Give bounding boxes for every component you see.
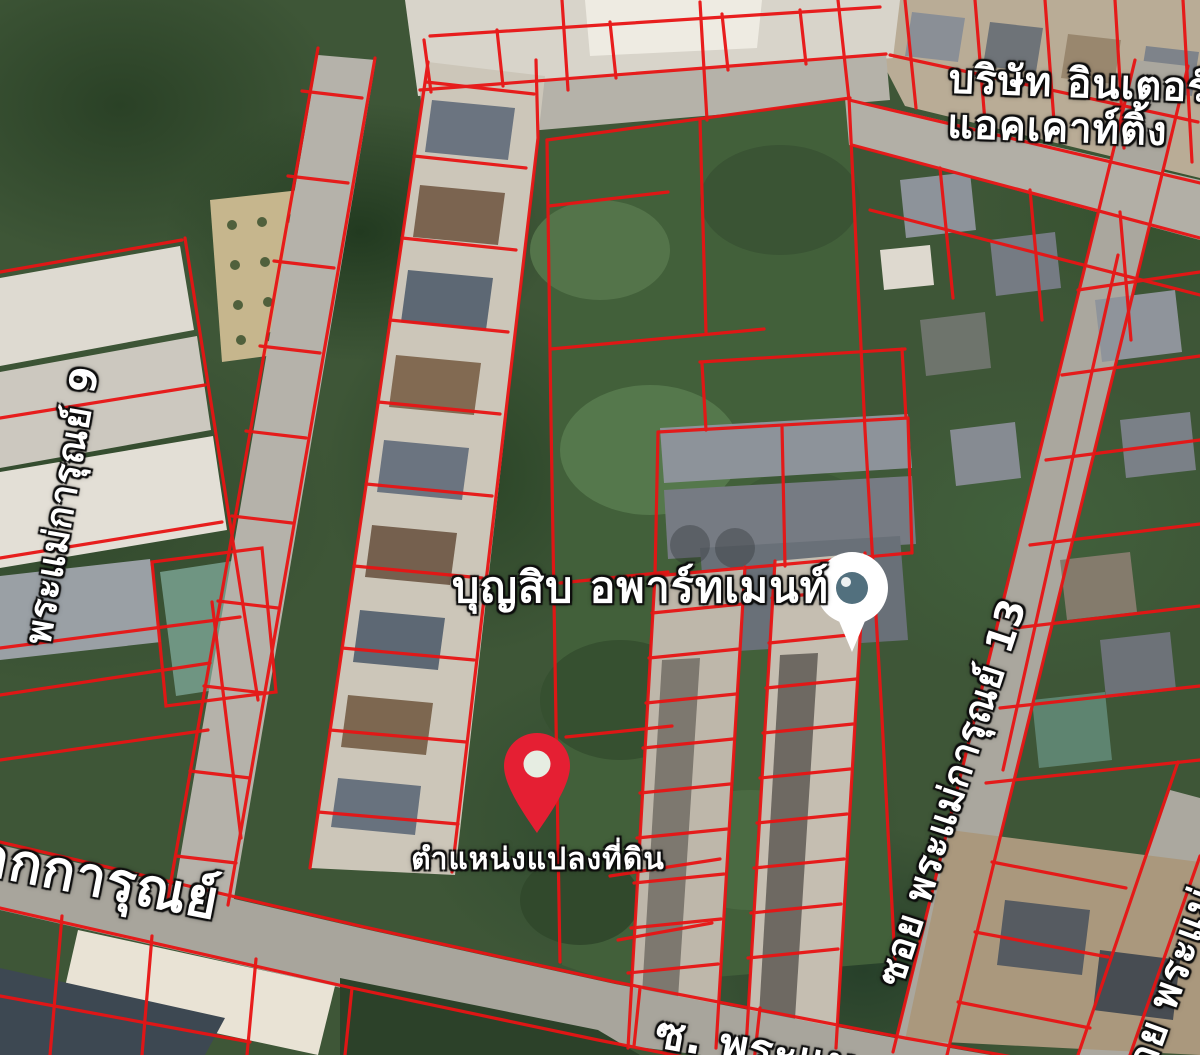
company-label: บริษัท อินเตอร์ แอคเคาท์ติ้ง	[947, 57, 1200, 156]
pin-label: ตำแหน่งแปลงที่ดิน	[396, 843, 680, 877]
company-label-line2: แอคเคาท์ติ้ง	[947, 102, 1200, 156]
location-pin-marker[interactable]	[504, 733, 570, 833]
satellite-map[interactable]: บริษัท อินเตอร์ แอคเคาท์ติ้ง บุญสิบ อพาร…	[0, 0, 1200, 1055]
apartment-label: บุญสิบ อพาร์ทเมนท์	[452, 564, 829, 612]
